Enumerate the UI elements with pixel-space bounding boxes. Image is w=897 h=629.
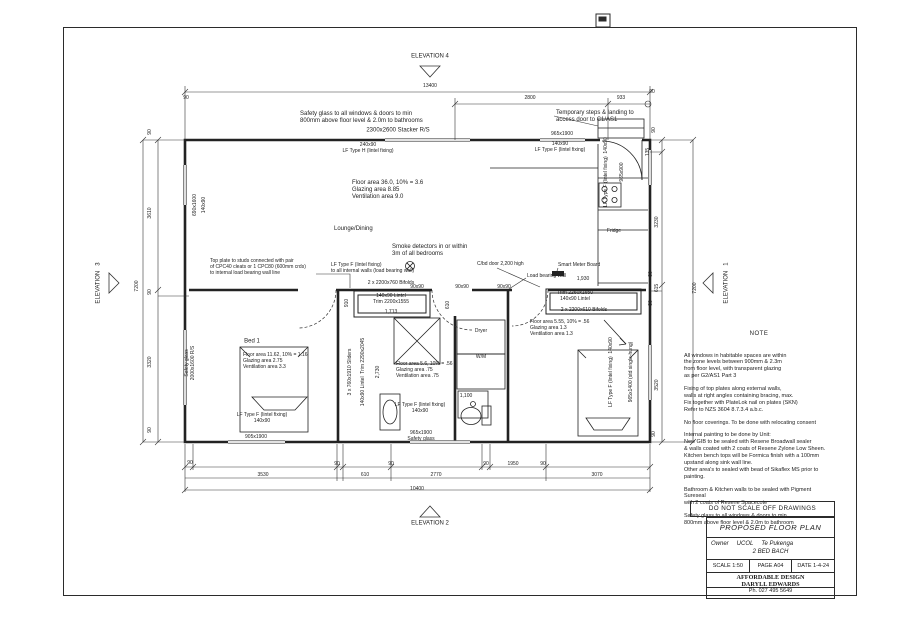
plan-label: 965x1900 Safety glass xyxy=(407,431,434,443)
door-swings xyxy=(298,290,548,330)
plan-label: 2770 xyxy=(430,473,441,479)
plan-label: 90 xyxy=(652,431,658,437)
plan-label: 1,713 xyxy=(385,310,398,316)
notes-heading: NOTE xyxy=(684,331,834,339)
plan-label: Smoke detectors in or within 3m of all b… xyxy=(392,244,467,258)
project-name: 2 BED BACH xyxy=(711,548,830,556)
page-cell: PAGE A04 xyxy=(750,560,793,572)
plan-label: 90x90 xyxy=(497,285,511,291)
plan-label: Lounge/Dining xyxy=(334,226,373,233)
plan-label: ELEVATION 3 xyxy=(95,262,102,303)
scale-page-date-row: SCALE 1:50 PAGE A04 DATE 1-4-24 xyxy=(707,560,834,573)
plan-label: LF Type F (lintel fixing) 140x90 xyxy=(609,337,615,407)
shower-symbol xyxy=(394,318,440,364)
plan-label: 610 xyxy=(446,301,452,309)
designer-name: AFFORDABLE DESIGN DARYLL EDWARDS xyxy=(707,573,834,588)
plan-label: LF Type F (lintel fixing) 140x90 xyxy=(604,137,610,207)
plan-label: 90 xyxy=(187,461,193,467)
plan-label: 135 xyxy=(646,148,652,156)
plan-label: 90 xyxy=(483,462,489,468)
plan-label: 2300x2600 Stacker R/S xyxy=(366,127,429,134)
plan-label: Floor area 36.0, 10% = 3.6 Glazing area … xyxy=(352,180,423,201)
drawing-title: PROPOSED FLOOR PLAN xyxy=(707,518,834,538)
plan-label: 3 x 760x1910 Sliders xyxy=(348,349,354,396)
toilet-symbol xyxy=(461,406,491,425)
date-cell: DATE 1-4-24 xyxy=(792,560,834,572)
plan-label: Smart Meter Board xyxy=(558,263,600,269)
scale-cell: SCALE 1:50 xyxy=(707,560,750,572)
plan-label: 1,930 xyxy=(577,277,590,283)
note-windows: All windows in habitable spaces are with… xyxy=(684,353,834,381)
plan-label: 965x900 xyxy=(620,162,626,181)
plan-label: 1950 xyxy=(507,462,518,468)
plan-label: ELEVATION 1 xyxy=(723,262,730,303)
plan-label: 7200 xyxy=(693,282,699,293)
do-not-scale-strip: DO NOT SCALE OFF DRAWINGS xyxy=(690,501,835,517)
plan-label: 1,100 xyxy=(460,394,473,400)
owner-label: Owner xyxy=(711,540,729,548)
plan-label: 90 xyxy=(183,96,189,102)
plan-label: Load bearing wall xyxy=(527,274,566,280)
plan-label: Safety glass 2000x1600 R/S xyxy=(185,346,197,380)
plan-label: 90x90 xyxy=(455,285,469,291)
plan-label: LF Type F (lintel fixing) 140x90 xyxy=(237,413,287,425)
plan-label: Floor area 11.62, 10% = 1.16 Glazing are… xyxy=(243,353,308,371)
plan-label: 2800 xyxy=(524,96,535,102)
owner-name: UCOL xyxy=(737,540,754,548)
plan-label: 140x90 Lintel Trim 2290x2045 xyxy=(361,338,367,406)
plan-label: 3070 xyxy=(591,473,602,479)
plan-label: 7200 xyxy=(135,280,141,291)
plan-label: 90 xyxy=(334,462,340,468)
plan-label: LF Type F (lintel fixing) to all interna… xyxy=(331,263,414,275)
note-top-plates: Fixing of top plates along external wall… xyxy=(684,386,834,414)
plan-label: W/M xyxy=(476,355,486,361)
plan-label: Bed 1 xyxy=(244,338,260,345)
owner-row: Owner UCOL Te Pukenga 2 BED BACH xyxy=(707,538,834,560)
plan-label: Temporary steps & landing to access door… xyxy=(556,110,634,124)
plan-label: Dryer xyxy=(475,329,487,335)
plan-label: 3520 xyxy=(655,379,661,390)
plan-label: Floor area 5.6, 10% = .56 Glazing area .… xyxy=(396,362,453,380)
plan-label: Safety glass to all windows & doors to m… xyxy=(300,111,423,125)
plan-label: 90 xyxy=(649,300,655,306)
plan-label: Trim 2260x1650 140x90 Lintel xyxy=(557,291,593,303)
plan-label: 965x1900 xyxy=(551,132,573,138)
plan-label: 90 xyxy=(652,127,658,133)
plan-label: ELEVATION 4 xyxy=(411,53,449,60)
note-painting: Internal painting to be done by Unit: Ne… xyxy=(684,432,834,480)
plan-label: 3610 xyxy=(148,207,154,218)
plan-label: 3230 xyxy=(655,216,661,227)
plan-label: 10400 xyxy=(410,487,424,493)
plan-label: 13400 xyxy=(423,84,437,90)
plan-label: 2,730 xyxy=(376,366,382,379)
plan-label: 90 xyxy=(540,462,546,468)
owner-name2: Te Pukenga xyxy=(761,540,793,548)
plan-label: 965x1400 (std single-hung) xyxy=(629,342,635,403)
plan-label: 140x90 LF Type F (lintel fixing) xyxy=(535,142,585,154)
plan-label: 90 xyxy=(649,90,655,96)
note-floor-coverings: No floor coverings. To be done with relo… xyxy=(684,420,834,427)
plan-label: 905x1900 xyxy=(245,435,267,441)
plan-label: 910 xyxy=(345,299,351,307)
drawing-sheet: ELEVATION 41340090280093390Safety glass … xyxy=(0,0,897,629)
plan-label: 90 xyxy=(649,271,655,277)
plan-label: 90 xyxy=(148,289,154,295)
plan-label: 2 x 2200x610 Bifolds xyxy=(561,308,607,314)
plan-label: 90 xyxy=(388,462,394,468)
plan-label: 90 xyxy=(148,427,154,433)
title-block: PROPOSED FLOOR PLAN Owner UCOL Te Pukeng… xyxy=(706,517,835,599)
plan-label: 140x90 xyxy=(202,197,208,213)
plan-label: 3530 xyxy=(257,473,268,479)
plan-label: 90 xyxy=(148,129,154,135)
plan-label: 3320 xyxy=(148,356,154,367)
designer-phone: Ph. 027 495 5649 xyxy=(707,588,834,596)
plan-label: 140x90 Lintel Trim 2200x1555 xyxy=(373,294,409,306)
plan-label: 933 xyxy=(617,96,625,102)
plan-label: Fridge xyxy=(607,229,621,235)
corner-stamp xyxy=(596,14,610,27)
plan-label: 615 xyxy=(655,284,661,292)
plan-label: Floor area 5.55, 10% = .56 Glazing area … xyxy=(530,320,589,338)
plan-label: 610 xyxy=(361,473,369,479)
plan-label: C/bd door 2,200 high xyxy=(477,262,524,268)
plan-label: 240x90 LF Type H (lintel fixing) xyxy=(342,143,393,155)
plan-label: 690x1600 xyxy=(193,194,199,216)
plan-label: ELEVATION 2 xyxy=(411,520,449,527)
plan-label: Top plate to studs connected with pair o… xyxy=(210,259,306,277)
plan-label: 2 x 2200x760 Bifolds xyxy=(368,281,414,287)
plan-label: LF Type F (lintel fixing) 140x90 xyxy=(395,403,445,415)
